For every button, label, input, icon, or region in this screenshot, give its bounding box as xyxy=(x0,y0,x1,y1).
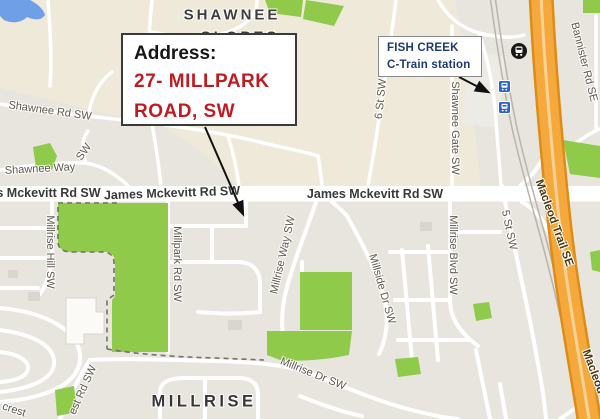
road-label-millpark-rd: Millpark Rd SW xyxy=(171,226,183,302)
station-line-2: C-Train station xyxy=(387,60,481,72)
address-line-1: 27- MILLPARK xyxy=(134,72,295,91)
address-annotation-box: Address: 27- MILLPARK ROAD, SW xyxy=(121,33,297,126)
station-annotation-box: FISH CREEK C-Train station xyxy=(378,36,482,77)
address-line-2: ROAD, SW xyxy=(134,102,295,121)
road-label-shawnee-gate: Shawnee Gate SW xyxy=(449,81,461,175)
map-canvas[interactable]: SHAWNEE SLOPES MILLRISE Shawnee Rd SW Sh… xyxy=(0,0,600,419)
station-line-1: FISH CREEK xyxy=(387,43,481,55)
neighborhood-label-millrise: MILLRISE xyxy=(152,393,257,412)
address-title: Address: xyxy=(134,44,295,63)
road-label-millrise-hill: Millrise Hill SW xyxy=(44,215,56,288)
road-label-james-mckevitt-left: es Mckevitt Rd SW xyxy=(0,186,101,200)
road-label-millrise-blvd: Millrise Blvd SW xyxy=(447,215,459,294)
neighborhood-label-shawnee: SHAWNEE xyxy=(184,7,281,24)
road-label-james-mckevitt-right: James Mckevitt Rd SW xyxy=(307,187,443,201)
